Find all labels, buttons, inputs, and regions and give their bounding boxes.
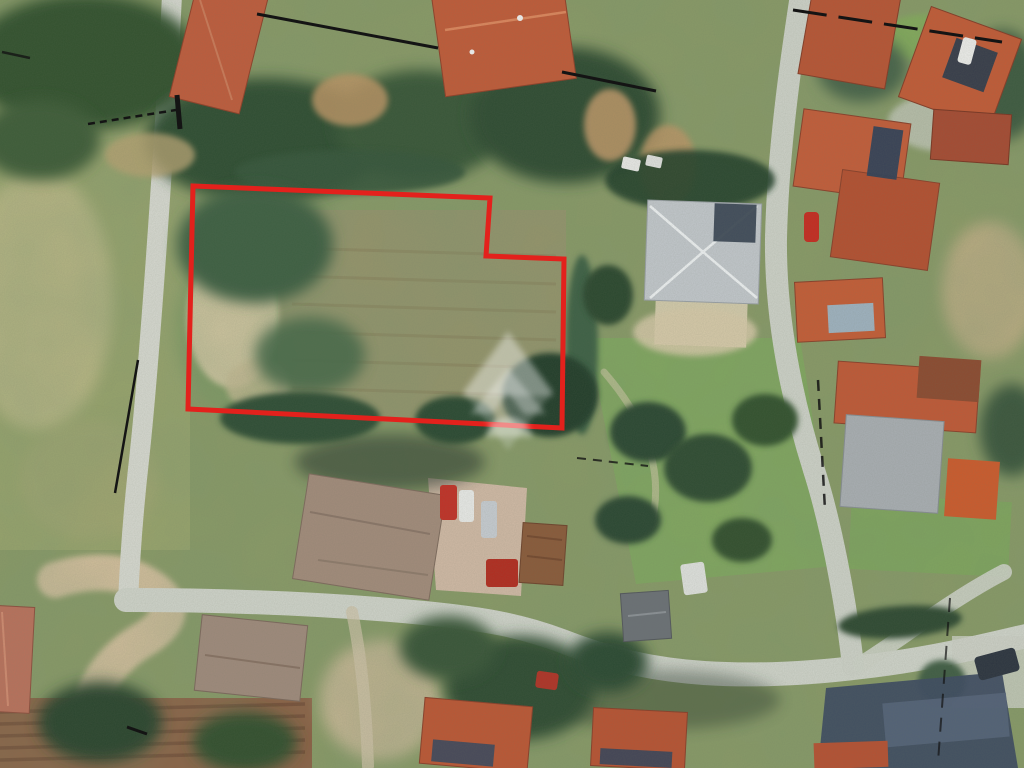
satellite-image [0,0,1024,768]
aerial-photo-viewport [0,0,1024,768]
cadastral-line [177,95,180,129]
